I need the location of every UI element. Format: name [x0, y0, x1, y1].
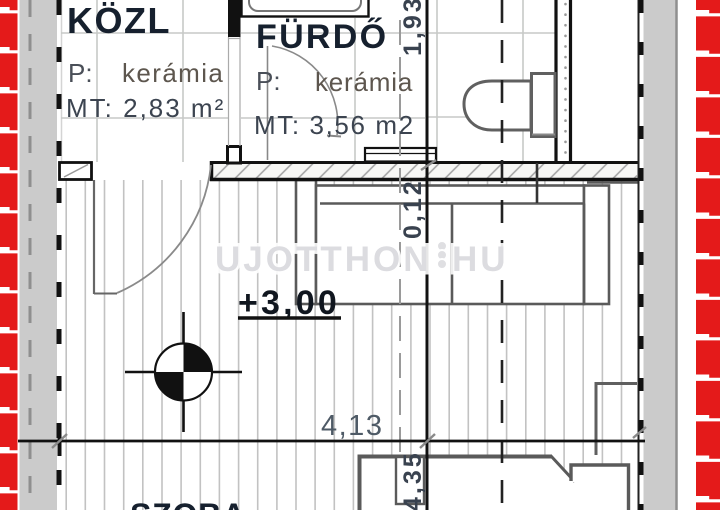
- svg-text:SZOBA: SZOBA: [130, 497, 246, 510]
- svg-text:UJOTTHON: UJOTTHON: [215, 240, 432, 279]
- svg-text:MT: 3,56 m2: MT: 3,56 m2: [254, 110, 415, 140]
- svg-text:HU: HU: [452, 240, 509, 279]
- svg-text:KÖZL: KÖZL: [67, 0, 171, 41]
- svg-text:4,35: 4,35: [399, 450, 427, 510]
- svg-text:kerámia: kerámia: [122, 58, 224, 88]
- svg-text:MT: 2,83 m²: MT: 2,83 m²: [66, 93, 225, 123]
- svg-text:P:: P:: [68, 58, 93, 88]
- svg-text:0,12: 0,12: [399, 178, 427, 239]
- svg-text:FÜRDŐ: FÜRDŐ: [256, 18, 388, 56]
- svg-text:1,93: 1,93: [399, 0, 427, 56]
- svg-text:kerámia: kerámia: [315, 67, 413, 97]
- svg-text:4,13: 4,13: [321, 410, 383, 442]
- svg-text:P:: P:: [256, 66, 281, 96]
